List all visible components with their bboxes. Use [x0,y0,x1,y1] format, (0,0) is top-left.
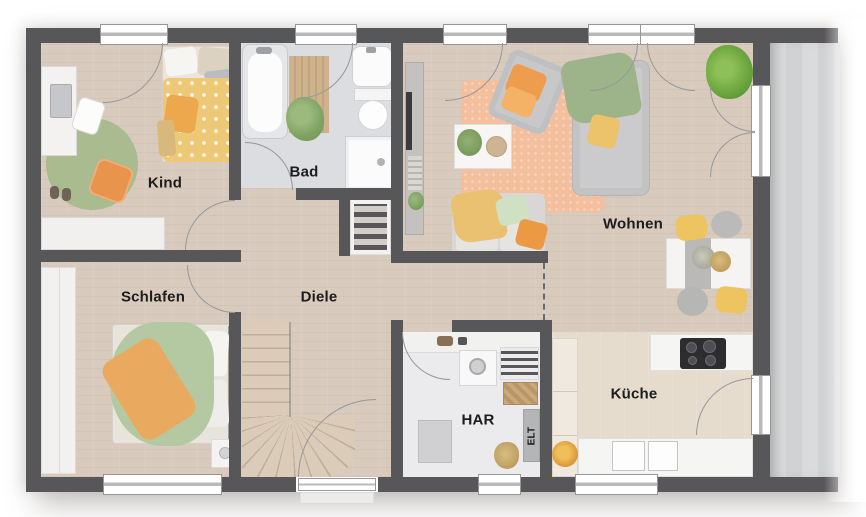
washing-machine-door [469,358,486,375]
floor-plan-canvas: Kind Bad Wohnen Schlafen Diele Küche HAR… [0,0,866,517]
exterior-wall-bottom-seg2 [222,477,296,492]
shower-drain [377,158,385,166]
exterior-wall-top-seg2 [168,28,295,43]
open-passage-dashed-line [543,263,545,320]
window-wohnen-right-b [640,24,695,45]
room-label-bad: Bad [290,164,319,181]
wall-kind-schlafen [26,250,241,262]
dining-chair-gray-top [711,211,742,238]
window-schlafen [103,474,222,495]
wall-schlafen-diele [229,312,241,477]
right-edge-fade [824,18,866,502]
wall-har-top [452,320,552,332]
slipper-right [62,188,71,201]
exterior-wall-bottom-seg4 [521,477,575,492]
dining-chair-yellow-top [675,213,708,241]
exterior-wall-bottom-seg3 [378,477,478,492]
window-wohnen-left [443,24,507,45]
window-bad [295,24,357,45]
dining-chair-yellow-bottom [715,285,749,314]
entrance-step [300,492,374,504]
plant-bad [286,97,324,141]
shelf-plant-small [408,192,424,210]
exterior-wall-right-seg1 [753,28,770,85]
room-label-schlafen: Schlafen [121,289,185,306]
cooktop-burner-1 [686,342,697,353]
cooktop-burner-4 [705,355,716,366]
shoe-shelf-shoes [354,204,387,250]
laundry-basket [503,382,538,405]
bathtub-basin [248,52,282,132]
utility-shelf [500,347,539,380]
tv-screen [406,92,412,150]
kitchen-exterior-door [751,375,771,435]
sideboard-kind [41,217,165,250]
utility-counter-keys [458,337,467,345]
bathtub-tap [256,47,272,54]
dining-chair-gray-bottom [677,287,708,316]
coffee-table-tray [486,136,507,157]
exterior-wall-right-seg3 [753,435,770,492]
dining-table-bowl [710,251,731,272]
shelf-books [408,156,422,190]
room-label-diele: Diele [301,289,338,306]
exterior-wall-top-seg3 [357,28,443,43]
exterior-wall-bottom-seg1 [26,477,103,492]
cooktop-burner-2 [703,340,716,353]
kitchen-sink-right [648,441,678,471]
staircase-straight-flight [242,322,291,415]
wall-har-kueche [540,320,552,477]
wall-diele-har [391,320,403,477]
wall-bad-wohnen [391,43,403,263]
bed-kind-pillow-white [163,46,198,77]
window-kueche [575,474,658,495]
washbasin-tap [366,47,376,53]
cooktop-burner-3 [688,356,697,365]
counter-bouquet [552,441,578,467]
room-label-har: HAR [461,412,494,429]
toilet-bowl [358,100,388,130]
coffee-table-plant [457,129,482,156]
wall-bad-diele [296,188,403,200]
storage-box [418,420,452,463]
wall-wohnen-diele [391,251,548,263]
exterior-wall-top-seg4 [507,28,588,43]
window-har [478,474,521,495]
room-label-kueche: Küche [611,386,658,403]
kitchen-sink-left [612,441,645,471]
staircase-handrail [289,322,291,417]
entrance-door-leaf [298,478,376,491]
exterior-wall-right-seg2 [753,177,770,375]
exterior-wall-bottom-seg5 [658,477,838,492]
staircase-winder-left [242,415,291,477]
wall-kind-bad [229,43,241,200]
window-kind [100,24,168,45]
wardrobe [41,267,76,474]
laptop [50,84,72,118]
wall-alcove-stub [339,200,350,256]
room-label-kind: Kind [148,175,182,192]
utility-deco-plant [494,442,519,469]
room-label-wohnen: Wohnen [603,216,663,233]
room-label-elt: ELT [527,427,538,446]
slipper-left [50,186,59,199]
window-wohnen-right-a [588,24,641,45]
bed-kind-blanket-fold [157,119,176,156]
